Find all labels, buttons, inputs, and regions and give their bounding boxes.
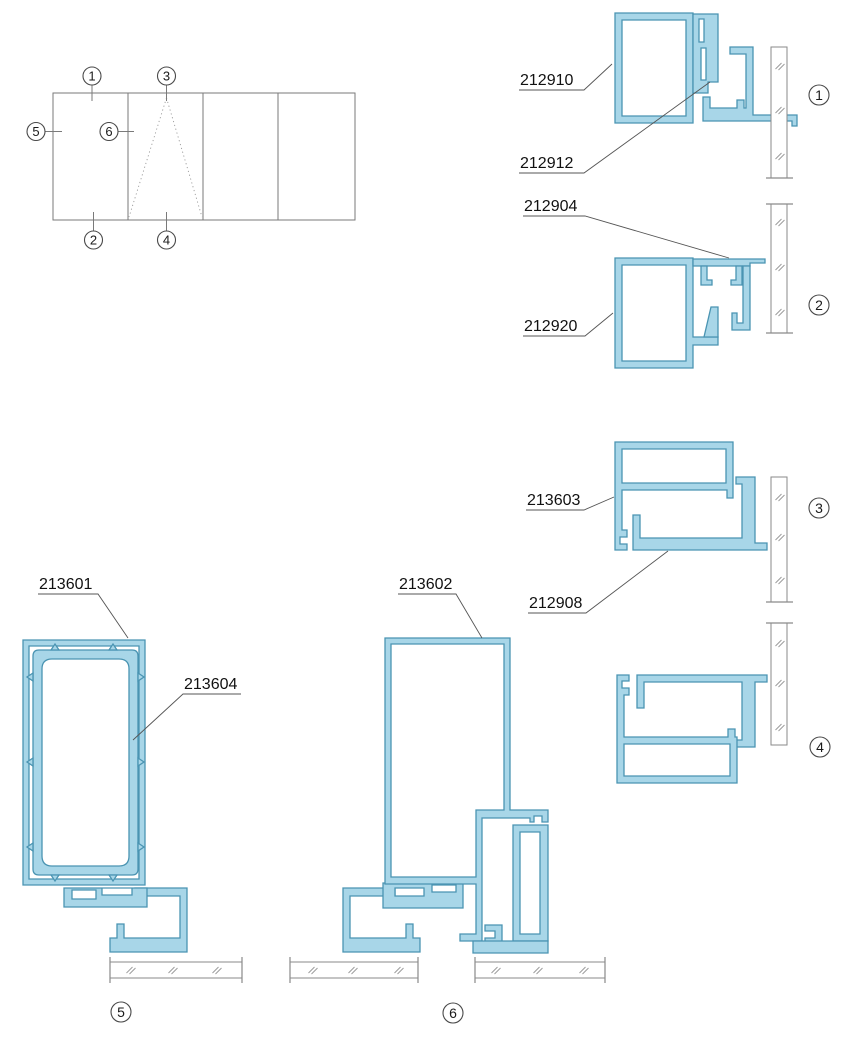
profile-adapter-block-6 bbox=[383, 883, 463, 908]
gasket-nubs bbox=[27, 644, 144, 881]
profile-sash-bottom bbox=[617, 675, 737, 783]
svg-text:1: 1 bbox=[88, 69, 95, 84]
profile-tube-6 bbox=[513, 825, 548, 941]
elevation-callout-6: 6 bbox=[100, 123, 118, 141]
elevation-callout-4: 4 bbox=[158, 231, 176, 249]
part-label-212908: 212908 bbox=[528, 551, 668, 613]
profile-cap-leg-right bbox=[731, 266, 742, 285]
svg-text:4: 4 bbox=[163, 233, 170, 248]
elevation-callout-1: 1 bbox=[83, 67, 101, 85]
part-label-212910: 212910 bbox=[519, 64, 612, 90]
svg-text:213604: 213604 bbox=[184, 676, 237, 693]
part-label-213602: 213602 bbox=[398, 576, 482, 638]
svg-text:6: 6 bbox=[105, 124, 112, 139]
svg-text:4: 4 bbox=[816, 739, 824, 755]
svg-text:212904: 212904 bbox=[524, 198, 577, 215]
svg-text:2: 2 bbox=[90, 233, 97, 248]
glass-pane-1 bbox=[771, 47, 787, 178]
svg-text:6: 6 bbox=[449, 1005, 457, 1021]
section-marker-3: 3 bbox=[809, 498, 829, 518]
svg-text:213603: 213603 bbox=[527, 492, 580, 509]
glass-pane-6a bbox=[290, 962, 418, 978]
svg-text:212908: 212908 bbox=[529, 595, 582, 612]
elevation-mullions bbox=[128, 93, 278, 220]
section-detail-3: 213603 212908 3 bbox=[526, 442, 829, 613]
section-detail-1: 212910 212912 1 bbox=[519, 13, 829, 178]
glass-pane-2 bbox=[771, 204, 787, 333]
svg-text:5: 5 bbox=[32, 124, 39, 139]
profile-glazing-wedge bbox=[704, 307, 718, 337]
section-detail-6: 213602 6 bbox=[290, 576, 605, 1023]
section-detail-2: 212904 212920 2 bbox=[523, 198, 829, 368]
profile-inner-213604 bbox=[33, 650, 138, 875]
svg-text:3: 3 bbox=[163, 69, 170, 84]
drawing-canvas: 1 3 2 4 5 6 212910 212912 bbox=[0, 0, 850, 1047]
part-label-213601: 213601 bbox=[38, 576, 128, 638]
elevation-diagram: 1 3 2 4 5 6 bbox=[27, 67, 355, 249]
section-marker-6: 6 bbox=[443, 1003, 463, 1023]
opening-direction-dashes bbox=[129, 98, 202, 217]
profile-cap-leg-left bbox=[701, 266, 712, 285]
section-detail-4: 4 bbox=[617, 623, 830, 783]
profile-adapter-bar-5 bbox=[64, 888, 147, 907]
section-marker-5: 5 bbox=[111, 1002, 131, 1022]
section-detail-5: 213601 213604 5 bbox=[23, 576, 242, 1022]
section-marker-2: 2 bbox=[809, 295, 829, 315]
svg-text:213601: 213601 bbox=[39, 576, 92, 593]
svg-text:213602: 213602 bbox=[399, 576, 452, 593]
profile-cap-212904 bbox=[693, 259, 765, 266]
svg-text:3: 3 bbox=[815, 500, 823, 516]
svg-text:212912: 212912 bbox=[520, 155, 573, 172]
profile-frame-212910 bbox=[615, 13, 693, 123]
elevation-callout-3: 3 bbox=[158, 67, 176, 85]
elevation-callout-5: 5 bbox=[27, 123, 45, 141]
elevation-outline bbox=[53, 93, 355, 220]
svg-text:5: 5 bbox=[117, 1004, 125, 1020]
svg-text:212910: 212910 bbox=[520, 72, 573, 89]
section-marker-1: 1 bbox=[809, 85, 829, 105]
part-label-213603: 213603 bbox=[526, 492, 614, 510]
elevation-callout-2: 2 bbox=[85, 231, 103, 249]
profile-foot-flange-6 bbox=[473, 941, 548, 953]
part-label-213604: 213604 bbox=[133, 676, 241, 740]
profile-insert-212912 bbox=[693, 14, 718, 93]
svg-text:2: 2 bbox=[815, 297, 823, 313]
callout-ticks bbox=[45, 85, 167, 231]
part-label-212904: 212904 bbox=[523, 198, 729, 258]
profile-sections-drawing: 1 3 2 4 5 6 212910 212912 bbox=[0, 0, 850, 1047]
part-label-212920: 212920 bbox=[523, 313, 613, 336]
profile-track-top bbox=[637, 675, 767, 747]
section-marker-4: 4 bbox=[810, 737, 830, 757]
svg-text:1: 1 bbox=[815, 87, 823, 103]
svg-text:212920: 212920 bbox=[524, 318, 577, 335]
